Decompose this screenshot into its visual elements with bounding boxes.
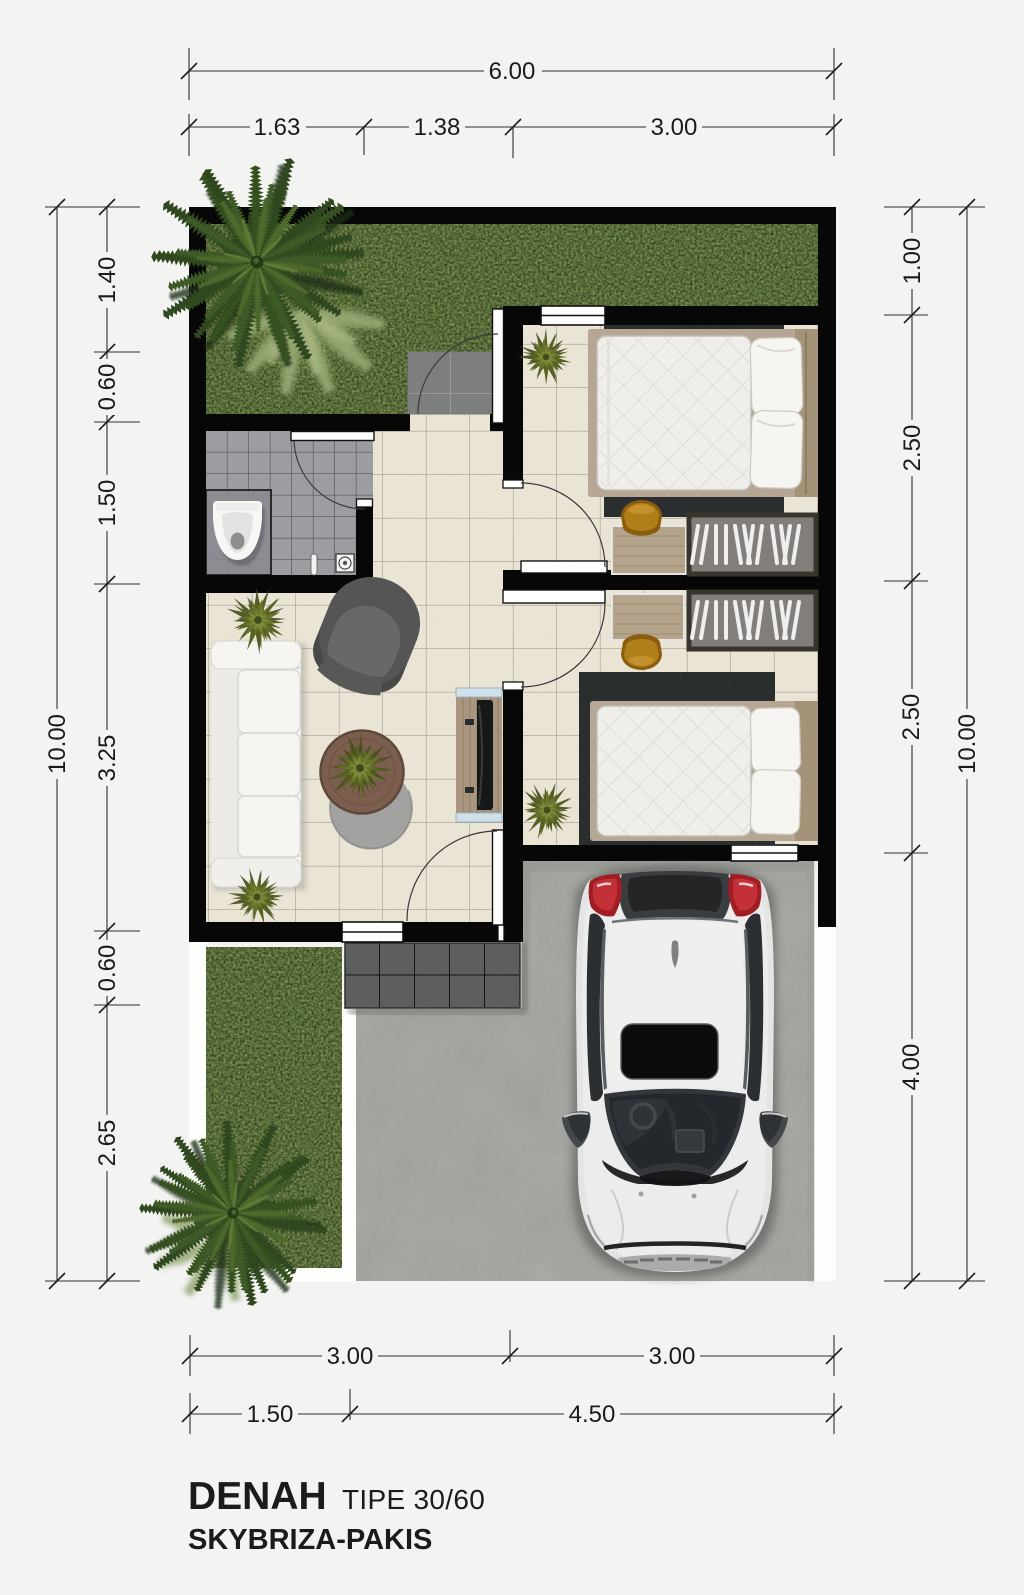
svg-text:TIPE 30/60: TIPE 30/60 xyxy=(342,1484,485,1515)
svg-text:1.38: 1.38 xyxy=(414,114,461,141)
svg-text:4.50: 4.50 xyxy=(569,1401,616,1428)
svg-text:3.00: 3.00 xyxy=(649,1343,696,1370)
svg-text:1.40: 1.40 xyxy=(94,257,121,304)
svg-text:10.00: 10.00 xyxy=(44,714,71,774)
svg-text:1.50: 1.50 xyxy=(94,480,121,527)
svg-text:1.50: 1.50 xyxy=(247,1401,294,1428)
svg-text:3.00: 3.00 xyxy=(327,1343,374,1370)
svg-text:1.63: 1.63 xyxy=(254,114,301,141)
svg-text:0.60: 0.60 xyxy=(94,945,121,992)
svg-text:4.00: 4.00 xyxy=(898,1044,925,1091)
svg-text:3.25: 3.25 xyxy=(94,735,121,782)
svg-text:2.50: 2.50 xyxy=(898,694,925,741)
svg-text:0.60: 0.60 xyxy=(94,364,121,411)
svg-text:DENAH: DENAH xyxy=(188,1475,327,1518)
svg-text:10.00: 10.00 xyxy=(954,714,981,774)
svg-text:2.50: 2.50 xyxy=(899,425,926,472)
svg-text:6.00: 6.00 xyxy=(489,58,536,85)
svg-text:2.65: 2.65 xyxy=(94,1120,121,1167)
svg-text:1.00: 1.00 xyxy=(899,238,926,285)
svg-text:3.00: 3.00 xyxy=(651,114,698,141)
svg-text:SKYBRIZA-PAKIS: SKYBRIZA-PAKIS xyxy=(188,1524,432,1556)
